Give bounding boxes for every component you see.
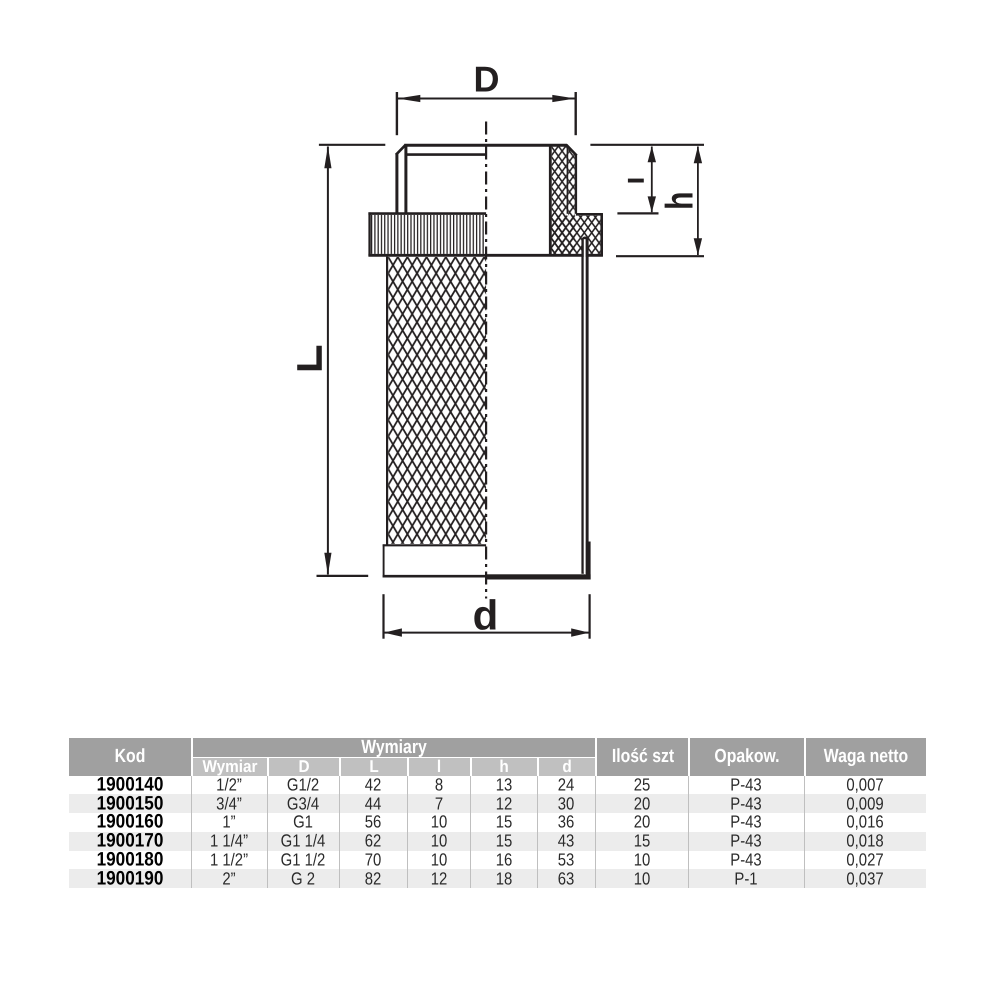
svg-text:h: h — [658, 192, 701, 210]
svg-text:D: D — [474, 59, 500, 100]
svg-text:d: d — [473, 592, 499, 639]
